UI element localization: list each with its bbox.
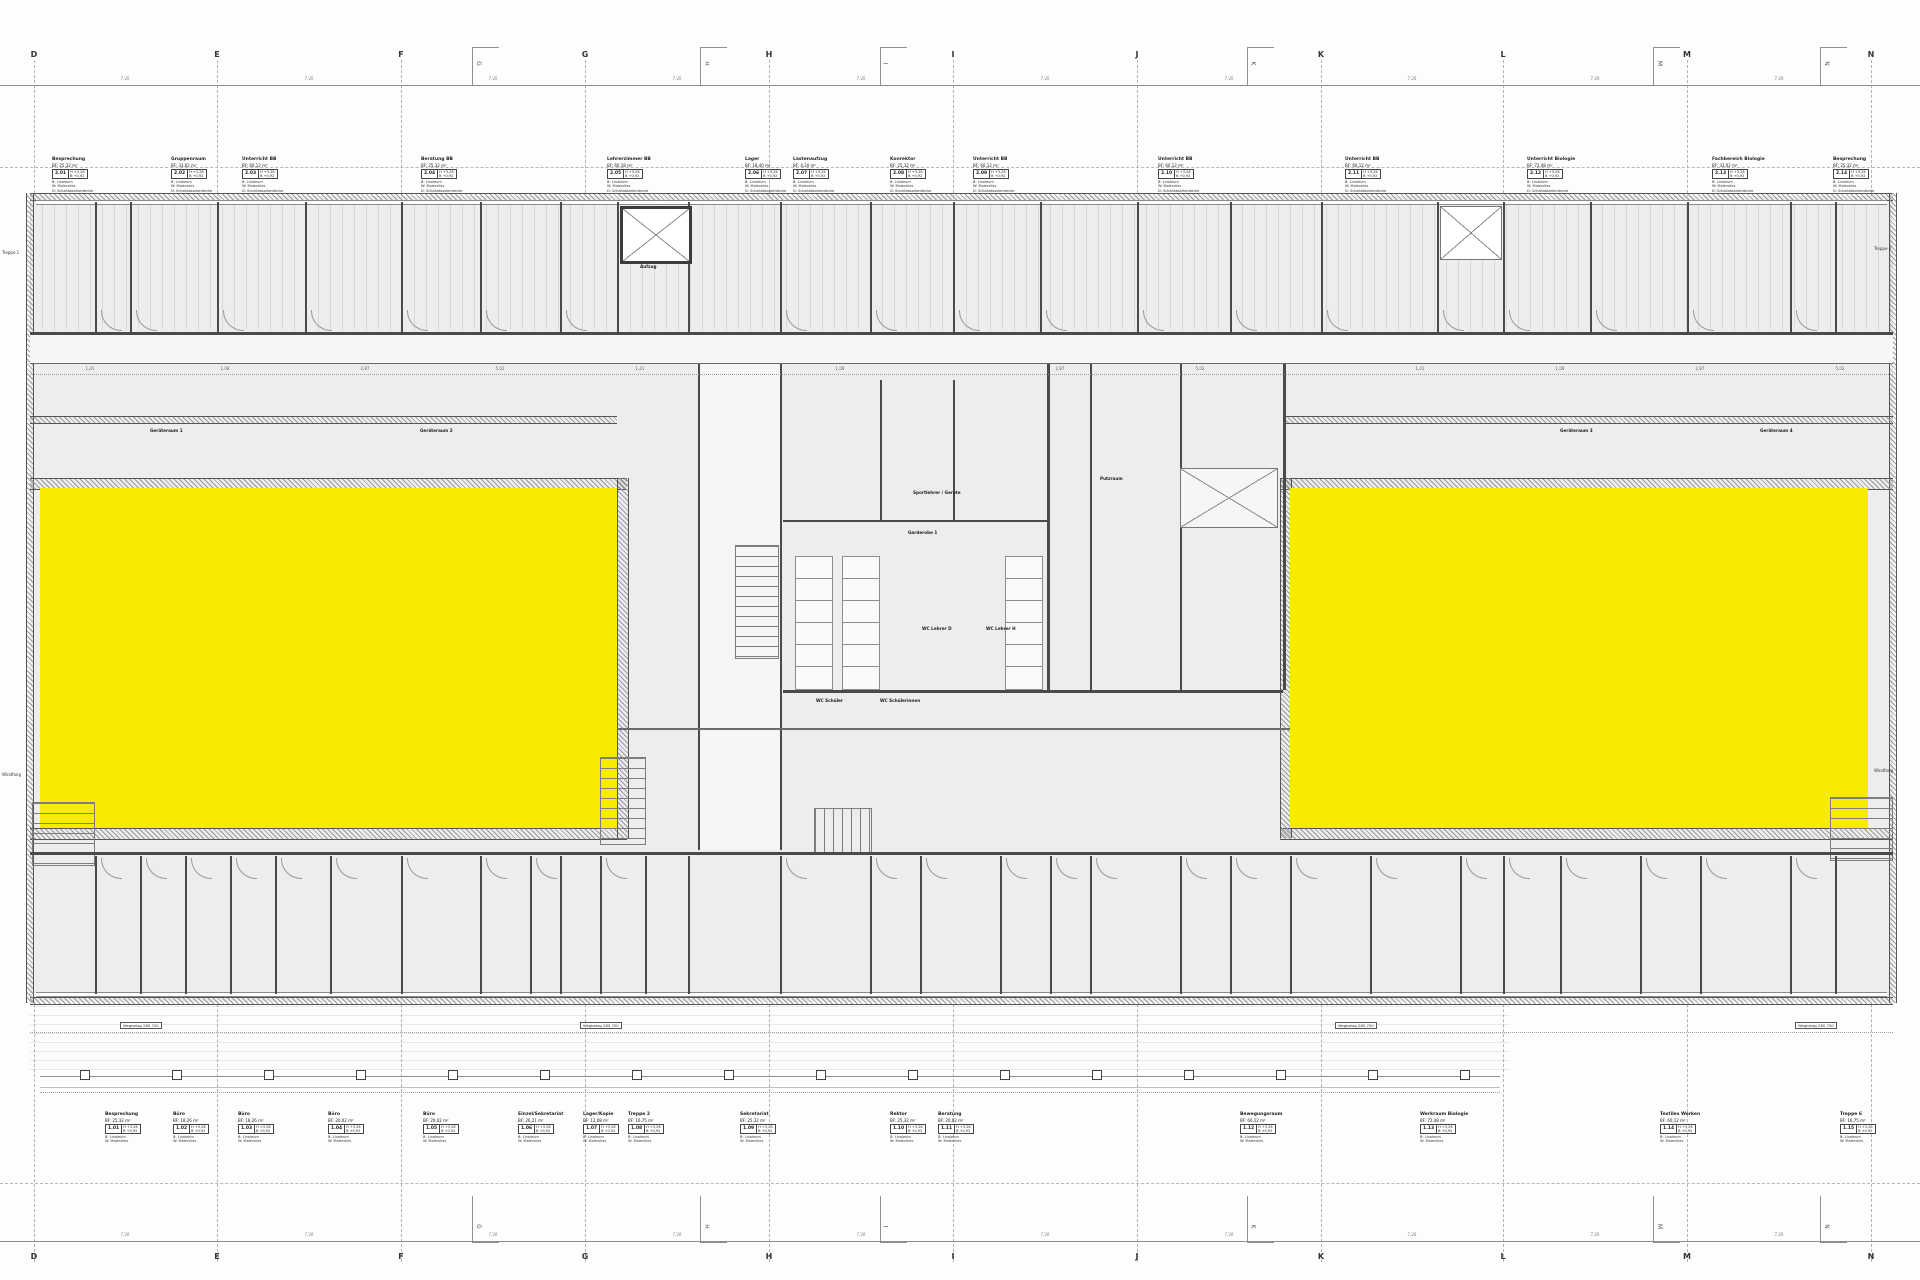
edge-label: Windfang (2, 772, 21, 777)
edge-label: Treppe 4 (1874, 246, 1891, 251)
floor-plan-drawing: DEFGHIJKLMN DEFGHIJKLMN 7,207,207,207,20… (0, 0, 1920, 1280)
edge-labels: Treppe 1WindfangTreppe 4Windfang (0, 0, 1920, 1280)
edge-label: Windfang (1874, 768, 1893, 773)
edge-label: Treppe 1 (2, 250, 19, 255)
